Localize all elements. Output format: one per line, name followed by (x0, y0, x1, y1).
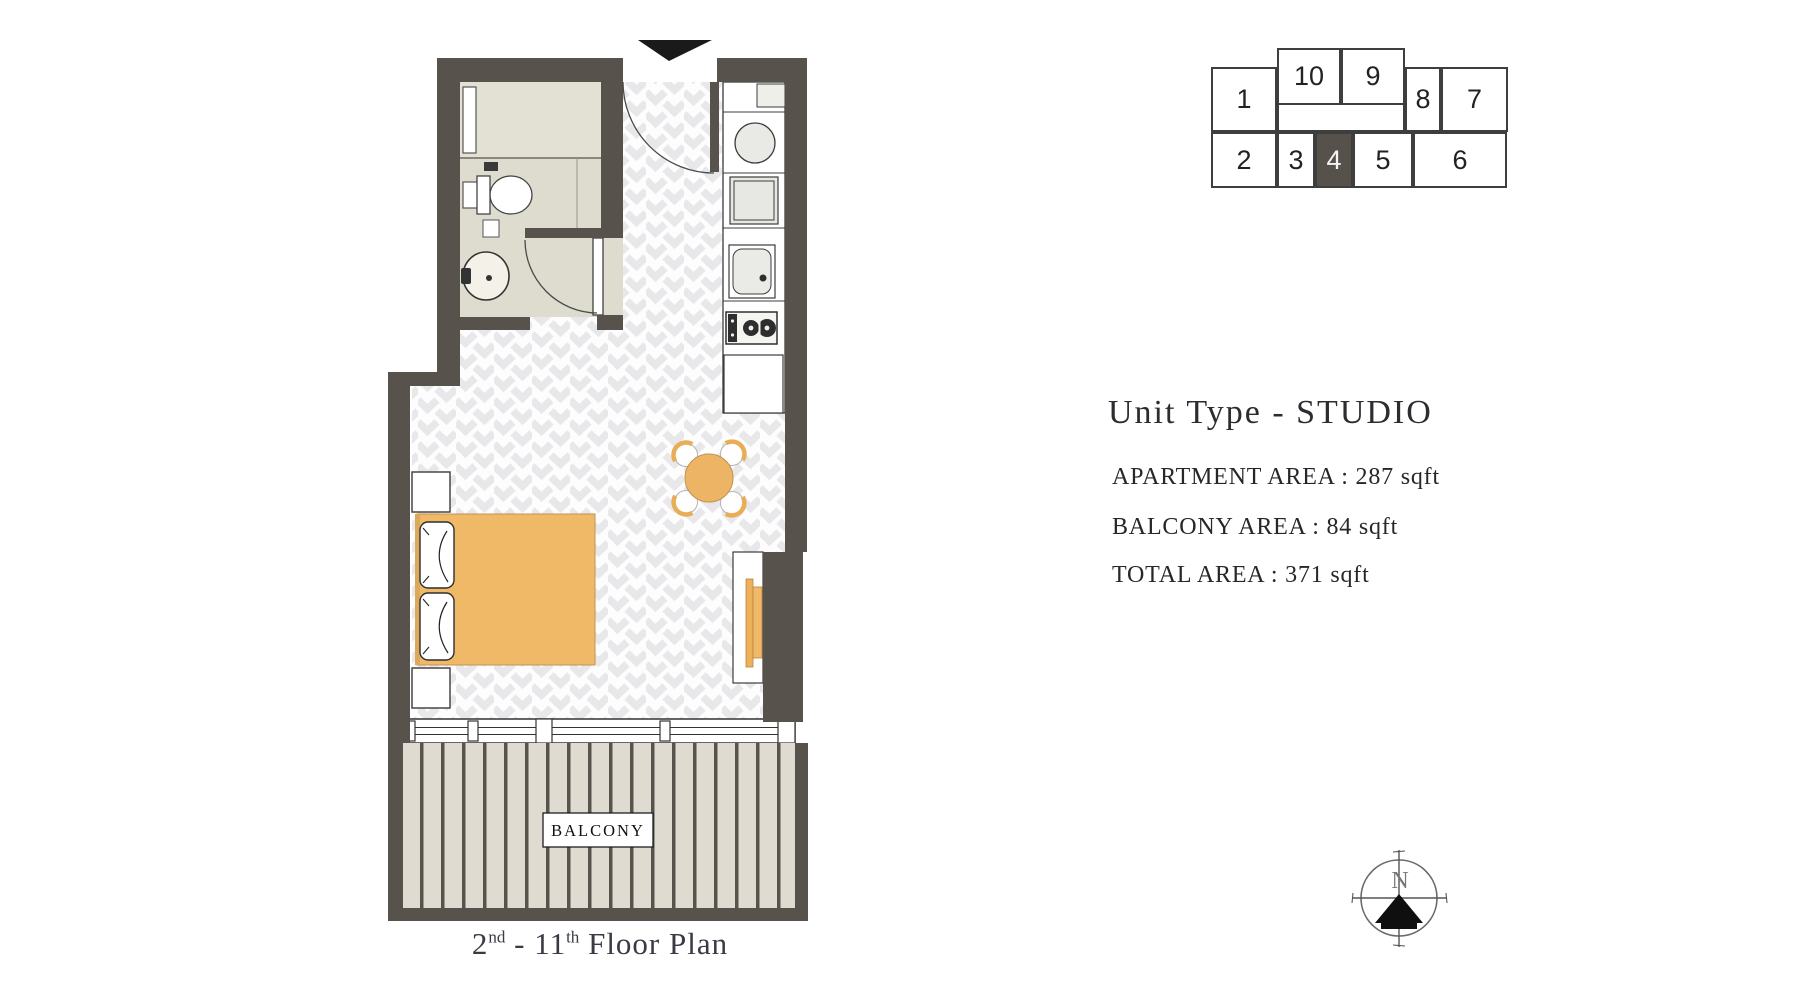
double-bed-icon (415, 514, 595, 665)
balcony-label: BALCONY (551, 821, 645, 840)
floor-plan: BALCONY (330, 30, 830, 930)
gas-hob-icon (726, 312, 777, 344)
sliding-window (403, 719, 795, 743)
north-arrow-icon (1375, 894, 1423, 929)
locator-corridor (1277, 103, 1405, 132)
unit-box-5: 5 (1353, 132, 1413, 188)
unit-number: 10 (1294, 61, 1324, 92)
nightstand-bottom (412, 668, 450, 708)
dining-table-icon (685, 454, 733, 502)
floor-plan-caption: 2nd - 11th Floor Plan (330, 926, 870, 962)
tv-unit (733, 552, 763, 683)
kitchen-sink-icon (729, 245, 775, 298)
unit-number: 5 (1375, 145, 1390, 176)
unit-number: 1 (1236, 84, 1251, 115)
unit-box-6: 6 (1413, 132, 1507, 188)
unit-box-3: 3 (1277, 132, 1315, 188)
counter-corner (757, 84, 785, 107)
unit-number: 3 (1288, 145, 1303, 176)
unit-box-1: 1 (1211, 67, 1277, 132)
total-area-text: TOTAL AREA : 371 sqft (1112, 562, 1370, 589)
unit-number: 6 (1452, 145, 1467, 176)
entry-arrow-icon (638, 40, 712, 61)
unit-box-8: 8 (1405, 67, 1441, 132)
unit-number: 9 (1365, 61, 1380, 92)
toilet-icon (477, 176, 532, 214)
unit-number: 7 (1467, 84, 1482, 115)
vanity-mirror (463, 87, 476, 153)
compass-rose: N (1340, 838, 1460, 960)
unit-number: 4 (1326, 145, 1341, 176)
unit-box-10: 10 (1277, 48, 1341, 105)
caption-mid: - 11 (505, 926, 566, 961)
unit-box-7: 7 (1441, 67, 1508, 132)
caption-ordinal: nd (488, 928, 505, 947)
paper-holder (483, 220, 499, 237)
caption-ordinal: th (566, 928, 579, 947)
unit-type-title: Unit Type - STUDIO (1108, 394, 1433, 432)
nightstand-top (412, 472, 450, 512)
kitchen (723, 82, 785, 413)
caption-rest: Floor Plan (579, 926, 728, 961)
unit-number: 8 (1415, 84, 1430, 115)
tv-icon (746, 579, 753, 667)
bathroom (460, 82, 623, 330)
oven-icon (730, 177, 778, 224)
unit-number: 2 (1236, 145, 1251, 176)
kitchen-cabinet (724, 355, 783, 413)
unit-box-2: 2 (1211, 132, 1277, 188)
balcony-area-text: BALCONY AREA : 84 sqft (1112, 514, 1398, 541)
pillow (420, 593, 454, 660)
caption-number: 2 (472, 926, 489, 961)
toilet-flush (484, 162, 498, 171)
apartment-area-text: APARTMENT AREA : 287 sqft (1112, 464, 1440, 491)
unit-locator: 1 10 9 8 7 2 3 4 5 6 (0, 0, 1800, 993)
washing-machine-icon (735, 123, 775, 163)
unit-box-4-highlighted: 4 (1315, 132, 1353, 188)
unit-box-9: 9 (1341, 48, 1405, 105)
balcony: BALCONY (403, 743, 795, 908)
pillow (420, 522, 454, 588)
compass-north-label: N (1391, 868, 1408, 894)
